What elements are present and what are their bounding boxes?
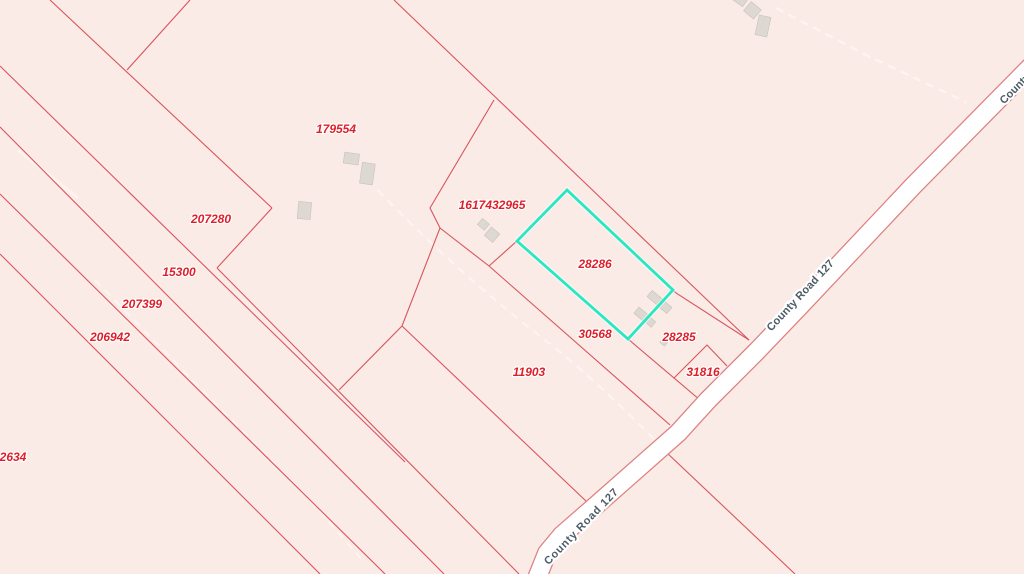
svg-text:207280: 207280: [190, 212, 231, 226]
svg-text:2634: 2634: [0, 450, 27, 464]
svg-text:179554: 179554: [316, 122, 356, 136]
svg-text:31816: 31816: [686, 365, 720, 379]
svg-text:30568: 30568: [578, 327, 612, 341]
svg-text:28285: 28285: [661, 330, 696, 344]
svg-text:207399: 207399: [121, 297, 162, 311]
svg-text:1617432965: 1617432965: [459, 198, 526, 212]
svg-text:15300: 15300: [162, 265, 196, 279]
svg-text:206942: 206942: [89, 330, 130, 344]
svg-text:28286: 28286: [577, 257, 612, 271]
svg-text:11903: 11903: [513, 365, 546, 379]
